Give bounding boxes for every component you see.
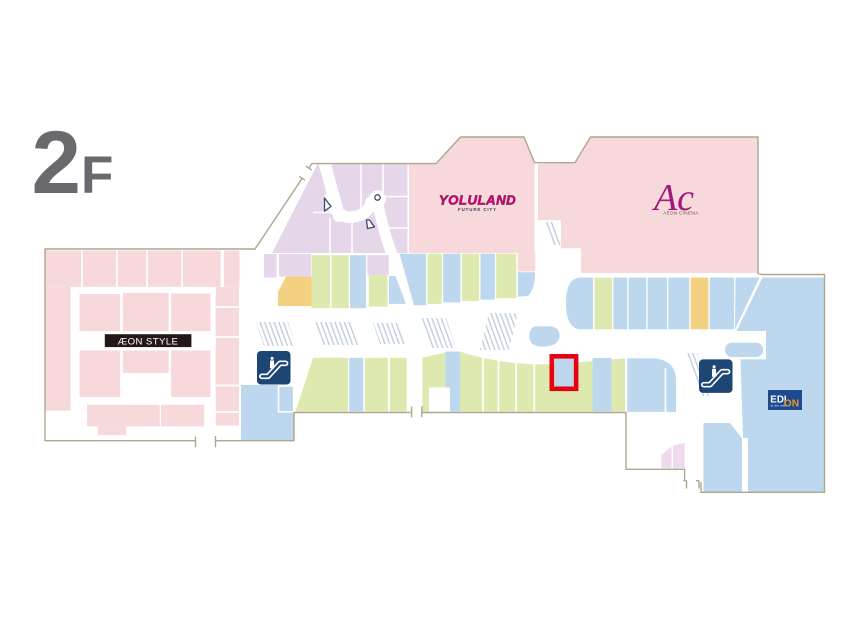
svg-text:ON: ON: [784, 399, 799, 410]
svg-text:YOLULAND: YOLULAND: [439, 193, 516, 208]
svg-text:at the real: at the real: [771, 403, 786, 407]
svg-text:2F: 2F: [32, 112, 114, 212]
svg-text:AEON CINEMA: AEON CINEMA: [663, 211, 699, 216]
svg-text:ÆON STYLE: ÆON STYLE: [118, 336, 179, 347]
svg-text:FUTURE CITY: FUTURE CITY: [458, 207, 497, 212]
